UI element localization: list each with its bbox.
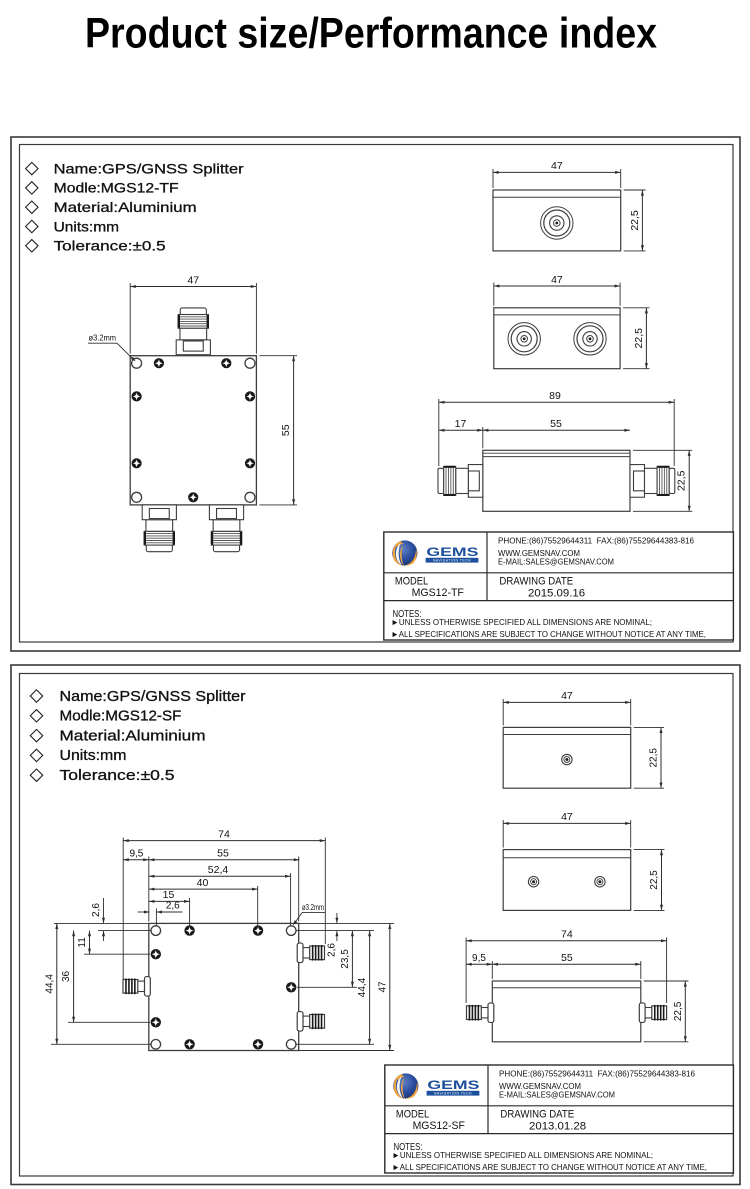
svg-text:55: 55 (561, 952, 573, 964)
svg-text:47: 47 (551, 274, 563, 286)
svg-text:22,5: 22,5 (629, 210, 641, 231)
svg-text:Material:Aluminium: Material:Aluminium (54, 199, 197, 215)
svg-text:E-MAIL:SALES@GEMSNAV.COM: E-MAIL:SALES@GEMSNAV.COM (498, 556, 614, 566)
svg-text:74: 74 (218, 828, 230, 840)
svg-text:NAVIGATION TECH: NAVIGATION TECH (433, 559, 471, 563)
svg-text:22,5: 22,5 (649, 748, 660, 768)
svg-text:55: 55 (280, 424, 292, 436)
svg-text:DRAWING DATE: DRAWING DATE (500, 1108, 574, 1120)
svg-text:55: 55 (550, 418, 562, 430)
svg-text:47: 47 (187, 274, 199, 286)
svg-text:PHONE:(86)75529644311 FAX:(86: PHONE:(86)75529644311 FAX:(86)7552964438… (498, 535, 694, 545)
svg-text:MODEL: MODEL (395, 575, 428, 587)
svg-text:PHONE:(86)75529644311 FAX:(86: PHONE:(86)75529644311 FAX:(86)7552964438… (499, 1068, 695, 1078)
svg-text:►UNLESS OTHERWISE SPECIFIED AL: ►UNLESS OTHERWISE SPECIFIED ALL DIMENSIO… (392, 1150, 653, 1160)
svg-text:11: 11 (77, 937, 88, 948)
svg-text:ø3.2mm: ø3.2mm (302, 902, 324, 912)
svg-text:NAVIGATION TECH: NAVIGATION TECH (434, 1092, 472, 1096)
svg-text:Material:Aluminium: Material:Aluminium (60, 728, 206, 744)
svg-text:44,4: 44,4 (357, 977, 368, 997)
svg-text:2,6: 2,6 (327, 943, 338, 957)
svg-text:74: 74 (561, 929, 573, 941)
svg-text:Modle:MGS12-SF: Modle:MGS12-SF (60, 709, 182, 725)
svg-text:23,5: 23,5 (340, 949, 351, 969)
svg-text:MGS12-SF: MGS12-SF (413, 1120, 466, 1132)
svg-text:89: 89 (549, 390, 561, 402)
svg-text:40: 40 (197, 877, 209, 889)
svg-text:36: 36 (61, 970, 72, 982)
svg-text:2,6: 2,6 (166, 901, 180, 912)
svg-text:15: 15 (163, 889, 175, 901)
svg-text:Name:GPS/GNSS Splitter: Name:GPS/GNSS Splitter (54, 160, 244, 176)
svg-text:2,6: 2,6 (91, 903, 102, 917)
svg-text:22,5: 22,5 (673, 1001, 684, 1021)
svg-text:55: 55 (217, 848, 229, 860)
svg-text:52,4: 52,4 (208, 864, 229, 876)
svg-text:Tolerance:±0.5: Tolerance:±0.5 (54, 238, 166, 254)
svg-text:Tolerance:±0.5: Tolerance:±0.5 (60, 768, 175, 784)
svg-text:9,5: 9,5 (472, 953, 486, 964)
svg-text:►ALL SPECIFICATIONS ARE SUBJEC: ►ALL SPECIFICATIONS ARE SUBJECT TO CHANG… (391, 629, 706, 639)
svg-text:►UNLESS OTHERWISE SPECIFIED AL: ►UNLESS OTHERWISE SPECIFIED ALL DIMENSIO… (391, 617, 652, 627)
svg-text:Units:mm: Units:mm (60, 748, 127, 764)
svg-text:9,5: 9,5 (129, 849, 143, 860)
svg-text:Units:mm: Units:mm (54, 218, 120, 234)
svg-text:Modle:MGS12-TF: Modle:MGS12-TF (54, 180, 179, 196)
svg-text:47: 47 (377, 981, 388, 993)
svg-text:E-MAIL:SALES@GEMSNAV.COM: E-MAIL:SALES@GEMSNAV.COM (499, 1089, 615, 1099)
svg-text:2015.09.16: 2015.09.16 (528, 588, 585, 600)
svg-text:44,4: 44,4 (44, 974, 55, 994)
svg-text:Name:GPS/GNSS Splitter: Name:GPS/GNSS Splitter (60, 689, 246, 705)
svg-text:47: 47 (551, 160, 563, 172)
svg-text:►ALL SPECIFICATIONS ARE SUBJEC: ►ALL SPECIFICATIONS ARE SUBJECT TO CHANG… (392, 1162, 707, 1172)
svg-text:47: 47 (561, 811, 573, 823)
svg-text:2013.01.28: 2013.01.28 (529, 1121, 586, 1133)
svg-text:DRAWING DATE: DRAWING DATE (499, 575, 573, 587)
svg-text:GEMS: GEMS (426, 545, 478, 559)
svg-text:22,5: 22,5 (633, 328, 645, 349)
svg-text:GEMS: GEMS (427, 1078, 479, 1092)
svg-text:ø3.2mm: ø3.2mm (89, 333, 117, 343)
svg-text:MGS12-TF: MGS12-TF (412, 587, 465, 599)
svg-text:22,5: 22,5 (649, 870, 660, 890)
svg-text:MODEL: MODEL (396, 1108, 429, 1120)
svg-text:22,5: 22,5 (676, 470, 688, 491)
svg-text:47: 47 (561, 690, 573, 702)
svg-text:Product size/Performance index: Product size/Performance index (85, 10, 657, 57)
svg-text:17: 17 (455, 418, 467, 430)
